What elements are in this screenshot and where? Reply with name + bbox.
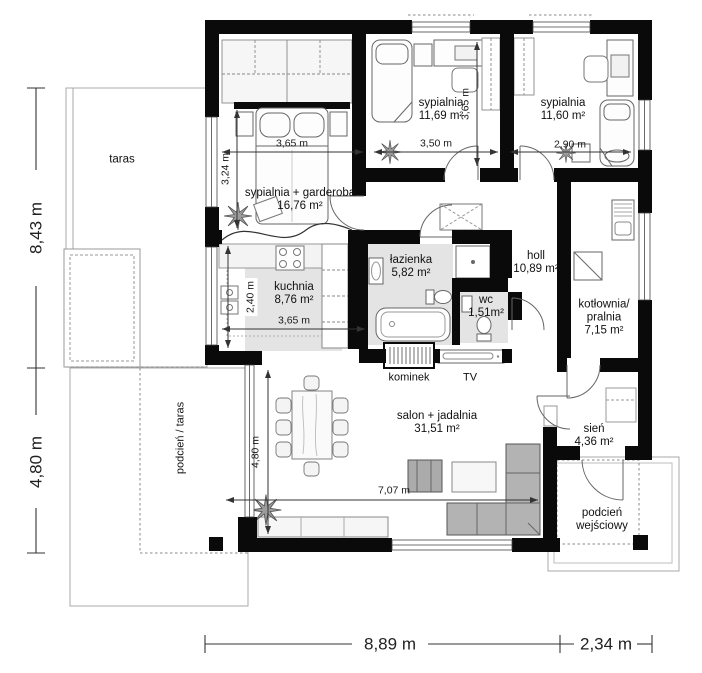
dim-bottom-side: 2,34 m (575, 638, 637, 651)
dim-bedroom2-width: 2,90 m (554, 139, 586, 152)
room-boiler-name1: kotłownia/ (578, 299, 629, 312)
bathroom-toilet (426, 290, 434, 304)
room-bedroom1-label: sypialnia 11,69 m² (419, 97, 464, 123)
room-wc-label: wc 1,51m² (468, 294, 504, 320)
wc-toilet (477, 334, 491, 341)
floor-plan: taras podcień / taras podcień wejściowy … (0, 0, 702, 673)
dim-bedroom1-depth: 3,65 m (460, 88, 473, 120)
dim-master-depth: 3,24 m (220, 153, 233, 185)
room-boiler-name2: pralnia (578, 312, 629, 325)
entry-porch-line2: wejściowy (576, 520, 628, 533)
tv-cabinet (438, 350, 504, 363)
room-bathroom-name: łazienka (390, 254, 432, 267)
dim-living-depth: 4,80 m (250, 436, 263, 468)
entry-porch-line1: podcień (576, 507, 628, 520)
room-hall-label: holl 10,89 m² (513, 250, 558, 276)
entry-porch-label: podcień wejściowy (576, 507, 628, 533)
room-bedroom2-name: sypialnia (541, 97, 586, 110)
room-kitchen-area: 8,76 m² (274, 294, 314, 307)
dim-bottom-main: 8,89 m (359, 638, 421, 651)
covered-terrace-label: podcień / taras (175, 402, 188, 474)
dim-bedroom1-width: 3,50 m (420, 138, 452, 151)
room-bathroom-area: 5,82 m² (390, 267, 432, 280)
dim-master-width: 3,65 m (276, 138, 308, 151)
dim-left-upper: 8,43 m (30, 197, 43, 259)
dim-kitchen-width: 3,65 m (278, 315, 310, 328)
room-vestibule-area: 4,36 m² (575, 436, 614, 449)
dim-living-width: 7,07 m (378, 485, 410, 498)
room-bedroom2-label: sypialnia 11,60 m² (541, 97, 586, 123)
room-hall-area: 10,89 m² (513, 263, 558, 276)
room-bedroom2-area: 11,60 m² (541, 110, 586, 123)
dim-left-lower: 4,80 m (30, 431, 43, 493)
room-bathroom-label: łazienka 5,82 m² (390, 254, 432, 280)
porch-column (209, 537, 223, 551)
room-living-area: 31,51 m² (397, 423, 477, 436)
master-curved-closet (222, 223, 352, 240)
room-kitchen-label: kuchnia 8,76 m² (274, 281, 314, 307)
room-living-label: salon + jadalnia 31,51 m² (397, 410, 477, 436)
terrace-label: taras (109, 154, 135, 167)
kitchen-sink (221, 286, 238, 314)
room-master-name: sypialnia + garderoba (245, 187, 355, 200)
bathtub (376, 308, 450, 341)
boiler-room-fixtures (574, 200, 634, 280)
room-wc-area: 1,51m² (468, 307, 504, 320)
room-kitchen-name: kuchnia (274, 281, 314, 294)
vestibule-closet (544, 388, 636, 426)
armchair (408, 460, 442, 492)
entry-porch-column (633, 535, 648, 550)
room-wc-name: wc (468, 294, 504, 307)
dim-kitchen-depth: 2,40 m (245, 278, 258, 316)
room-bedroom1-area: 11,69 m² (419, 110, 464, 123)
dining-set (276, 376, 348, 476)
room-bedroom1-name: sypialnia (419, 97, 464, 110)
sideboard (258, 517, 388, 537)
hall-cabinet (440, 204, 482, 230)
room-master-label: sypialnia + garderoba 16,76 m² (245, 187, 355, 213)
fireplace (384, 343, 434, 368)
room-master-area: 16,76 m² (245, 200, 355, 213)
master-wardrobe (222, 40, 352, 103)
room-vestibule-label: sień 4,36 m² (575, 423, 614, 449)
fireplace-label: kominek (389, 372, 430, 385)
room-vestibule-name: sień (575, 423, 614, 436)
room-living-name: salon + jadalnia (397, 410, 477, 423)
coffee-table (452, 462, 496, 492)
planter-box (64, 249, 140, 367)
tv-label: TV (463, 372, 477, 385)
room-hall-name: holl (513, 250, 558, 263)
room-boiler-label: kotłownia/ pralnia 7,15 m² (578, 299, 629, 338)
room-boiler-area: 7,15 m² (578, 325, 629, 338)
